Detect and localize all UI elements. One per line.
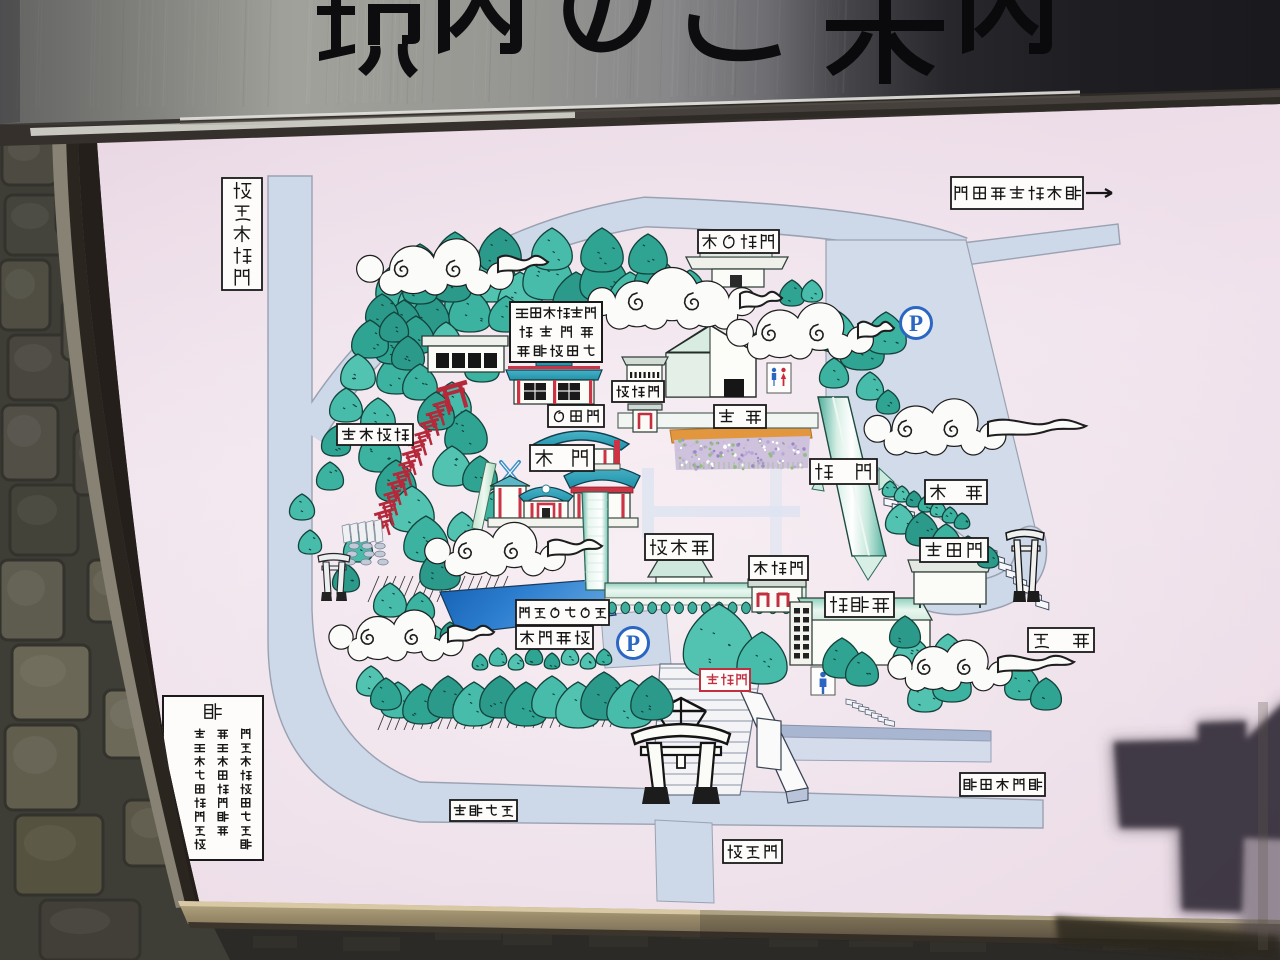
svg-text:P: P (909, 311, 923, 336)
svg-text:P: P (626, 631, 640, 656)
